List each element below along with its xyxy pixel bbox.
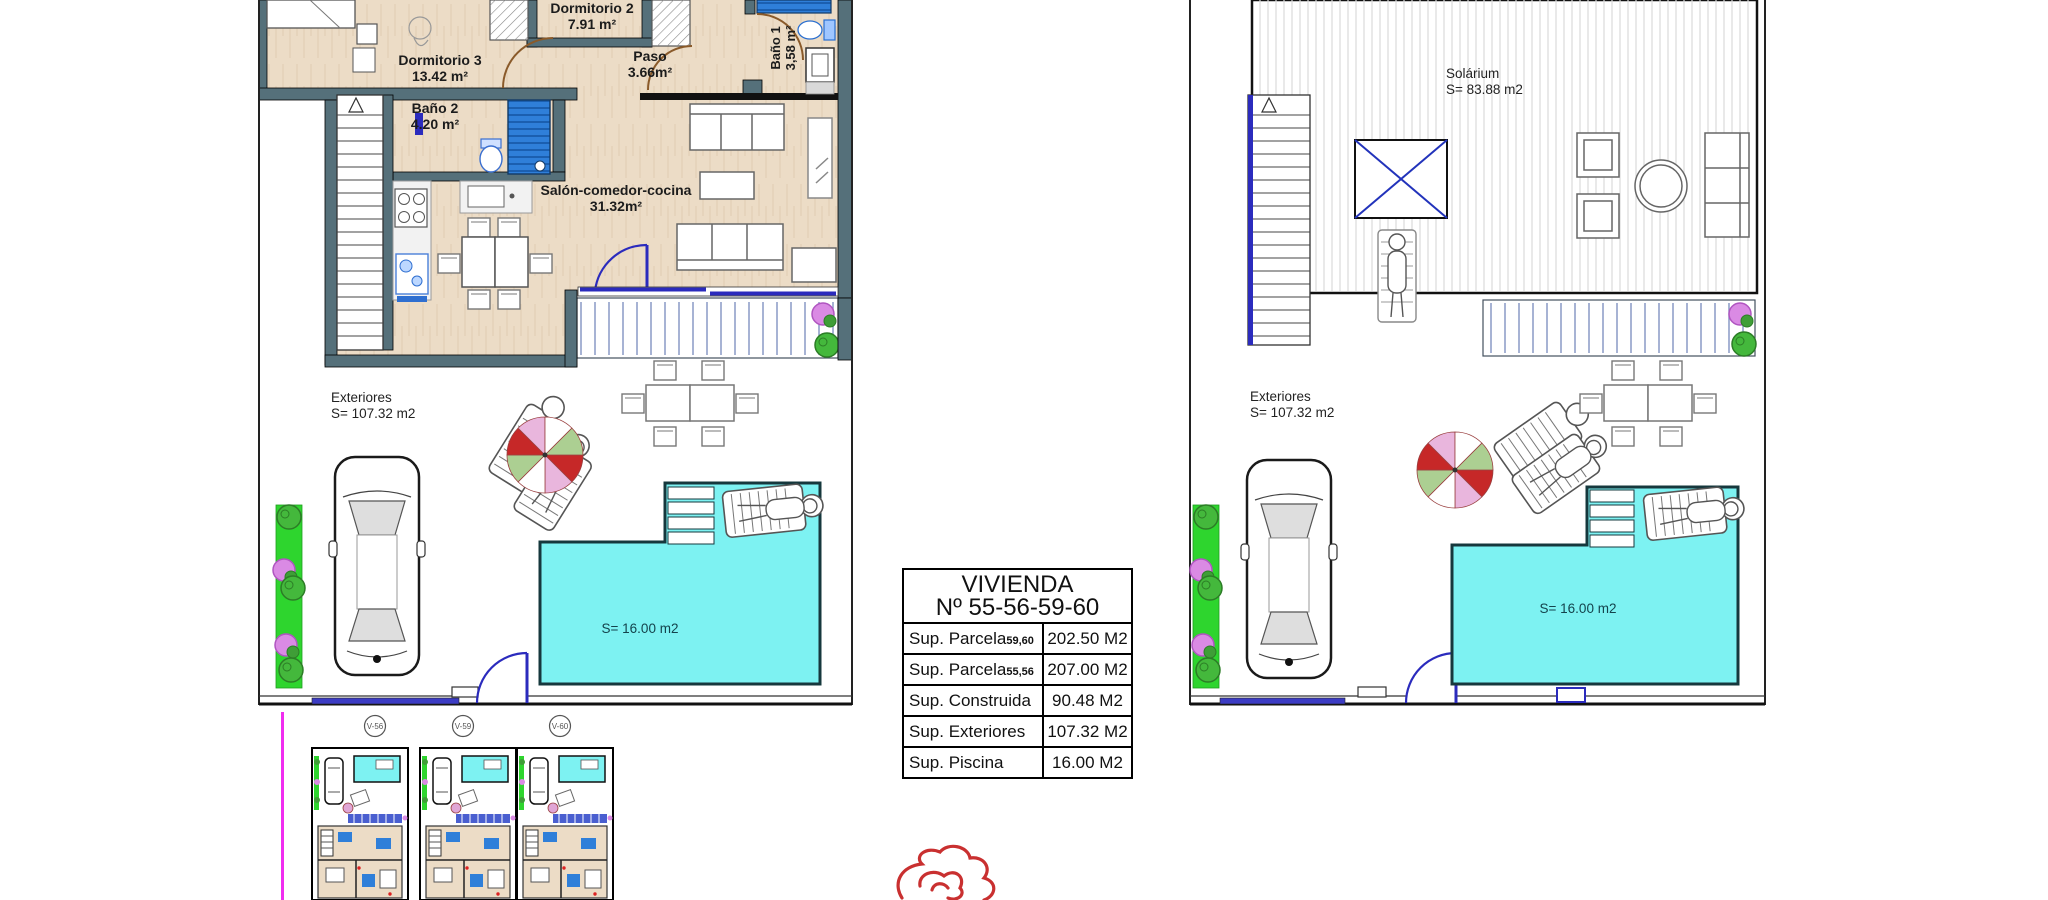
room-label-bano2: Baño 24.20 m² xyxy=(365,100,505,132)
left-pool-label: S= 16.00 m2 xyxy=(560,621,720,637)
table-title: VIVIENDA Nº 55-56-59-60 xyxy=(904,570,1131,624)
room-label-salon: Salón-comedor-cocina31.32m² xyxy=(536,182,696,214)
left-plan-ground-floor xyxy=(259,0,852,705)
roof-porch xyxy=(1483,300,1756,356)
swimming-pool-right xyxy=(1452,485,1746,684)
table-row: Sup. Piscina 16.00 M2 xyxy=(904,748,1131,777)
table-row: Sup. Construida 90.48 M2 xyxy=(904,686,1131,717)
dwelling-info-table: VIVIENDA Nº 55-56-59-60 Sup. Parcela59,6… xyxy=(902,568,1133,779)
right-exterior-label: ExterioresS= 107.32 m2 xyxy=(1250,389,1450,421)
solarium-deck xyxy=(1248,0,1757,345)
room-label-dormitorio3: Dormitorio 313.42 m² xyxy=(360,52,520,84)
thumbnail-tag-2: V-59 xyxy=(446,722,480,731)
rose-logo xyxy=(898,846,994,900)
thumbnail-tag-1: V-56 xyxy=(358,722,392,731)
left-exterior-label: ExterioresS= 107.32 m2 xyxy=(331,390,531,422)
swimming-pool-left xyxy=(540,482,825,684)
right-plan-roof xyxy=(1190,0,1765,705)
table-row: Sup. Exteriores 107.32 M2 xyxy=(904,717,1131,748)
magenta-marker-line xyxy=(281,712,284,900)
roof-lounger-person xyxy=(1378,230,1416,322)
room-label-paso: Paso3.66m² xyxy=(580,48,720,80)
sliding-door xyxy=(578,287,838,296)
right-pool-label: S= 16.00 m2 xyxy=(1498,601,1658,617)
room-label-bano1: Baño 13,58 m² xyxy=(768,8,804,88)
staircase xyxy=(337,95,383,350)
room-label-dormitorio2: Dormitorio 27.91 m² xyxy=(512,0,672,32)
floorplan-sheet: Dormitorio 27.91 m² Dormitorio 313.42 m²… xyxy=(0,0,2048,900)
site-thumbnails xyxy=(281,712,613,900)
solarium-label: SoláriumS= 83.88 m2 xyxy=(1446,66,1646,98)
table-row: Sup. Parcela55,56 207.00 M2 xyxy=(904,655,1131,686)
roof-staircase xyxy=(1248,95,1310,345)
thumbnail-tag-3: V-60 xyxy=(543,722,577,731)
porch-pergola xyxy=(577,298,839,358)
table-row: Sup. Parcela59,60 202.50 M2 xyxy=(904,624,1131,655)
